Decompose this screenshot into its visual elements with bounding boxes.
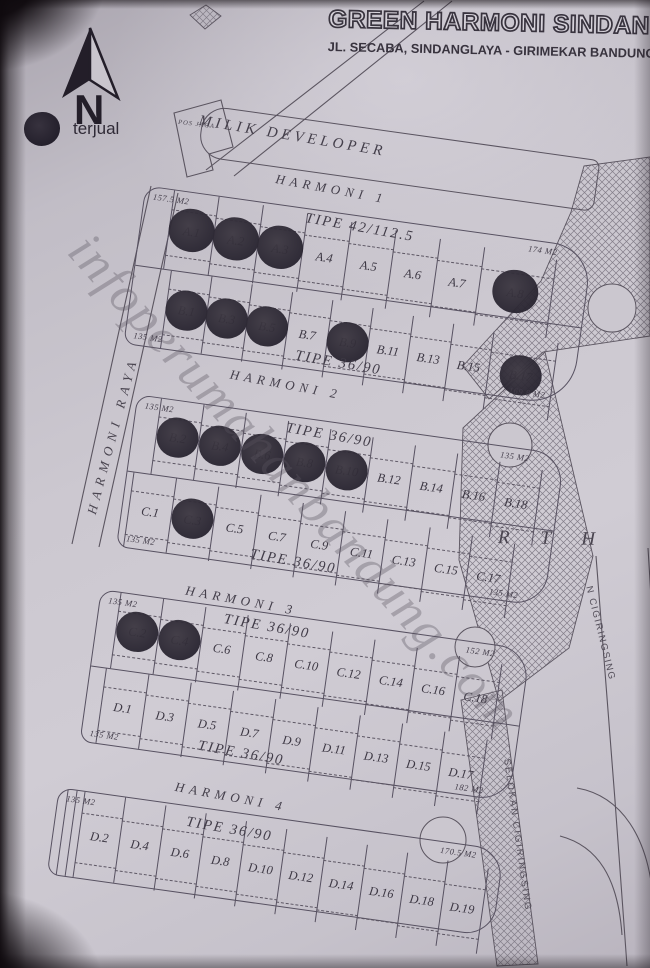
plot-label: D.1 xyxy=(112,700,132,717)
gate-diamond-hatch xyxy=(190,5,221,29)
sold-marker xyxy=(166,206,218,255)
plot-label: D.11 xyxy=(321,740,347,758)
plot-label: C.15 xyxy=(433,560,459,578)
sold-marker xyxy=(163,288,210,333)
sold-marker xyxy=(210,215,262,264)
plot-label: C.17 xyxy=(475,569,501,587)
sold-marker xyxy=(196,423,243,468)
plot-label: D.6 xyxy=(170,844,190,861)
block-harmoni-1: A.1A.2A.3A.4A.5A.6A.7A.8TIPE 42/112.5157… xyxy=(123,185,593,406)
sold-marker xyxy=(244,303,291,348)
sold-marker xyxy=(254,223,306,272)
sold-marker xyxy=(281,439,328,484)
sold-marker xyxy=(156,617,203,662)
plot-label: D.12 xyxy=(288,868,315,886)
plot-label: C.12 xyxy=(336,665,362,683)
plot-label: D.7 xyxy=(239,724,259,741)
plot-label: B.16 xyxy=(461,487,486,505)
plot-label: D.9 xyxy=(281,732,301,749)
sold-marker xyxy=(323,447,370,492)
plot-label: C.1 xyxy=(140,504,160,521)
plot-label: D.16 xyxy=(368,883,395,901)
site-plan-photo: MILIK DEVELOPER HARMONI 1A.1A.2A.3A.4A.5… xyxy=(0,0,650,968)
plan-header: GREEN HARMONI SINDANGLAYA JL. SECABA, SI… xyxy=(328,6,650,62)
block-harmoni-2: B.2B.4B.6B.8B.10B.12B.14B.16B.18TIPE 36/… xyxy=(116,394,565,607)
plot-B.17: B.17 xyxy=(483,333,558,420)
plot-label: C.13 xyxy=(391,552,417,570)
legend: terjual xyxy=(24,112,119,146)
plot-label: D.15 xyxy=(405,756,432,774)
plot-D.17: D.17 xyxy=(435,733,488,814)
page-title: GREEN HARMONI SINDANGLAYA xyxy=(328,6,650,42)
plot-label: A.6 xyxy=(403,266,422,283)
plot-label: D.8 xyxy=(210,852,230,869)
area-label: 152 M2 xyxy=(465,644,495,658)
plot-label: C.7 xyxy=(267,528,287,545)
plot-label: B.15 xyxy=(456,358,481,376)
sold-marker xyxy=(203,296,250,341)
sold-marker xyxy=(169,496,216,541)
plot-label: C.16 xyxy=(420,681,446,699)
plot-label: B.13 xyxy=(415,350,440,368)
plot-label: B.12 xyxy=(376,471,401,489)
plot-label: A.7 xyxy=(447,274,466,291)
sold-marker xyxy=(154,415,201,460)
plot-label: C.10 xyxy=(293,657,319,675)
plot-label: D.2 xyxy=(89,829,109,846)
area-label: 135 M2 xyxy=(500,449,530,463)
plot-label: D.3 xyxy=(155,708,175,725)
sold-marker xyxy=(114,609,161,654)
plot-label: D.10 xyxy=(247,860,274,878)
plot-label: B.11 xyxy=(376,342,400,360)
sold-legend-label: terjual xyxy=(73,119,119,139)
plot-label: C.8 xyxy=(254,649,274,666)
plot-label: D.17 xyxy=(447,765,474,783)
plot-label: C.14 xyxy=(378,673,404,691)
sold-legend-icon xyxy=(24,112,60,146)
plot-C.17: C.17 xyxy=(462,537,515,618)
area-label: 174 M2 xyxy=(528,243,558,257)
plot-label: B.7 xyxy=(298,327,317,344)
plot-label: C.11 xyxy=(349,544,374,562)
sold-marker xyxy=(239,431,286,476)
plot-label: C.9 xyxy=(309,536,329,553)
plot-label: C.5 xyxy=(225,520,245,537)
plot-label: D.4 xyxy=(129,836,149,853)
plot-label: B.14 xyxy=(419,479,444,497)
plot-label: A.5 xyxy=(359,258,378,275)
plot-label: D.13 xyxy=(363,748,390,766)
plot-label: D.18 xyxy=(408,891,435,909)
plot-label: D.14 xyxy=(328,875,355,893)
plot-label: A.4 xyxy=(315,249,334,266)
plot-label: C.18 xyxy=(462,689,488,707)
block-harmoni-3: C.2C.4C.6C.8C.10C.12C.14C.16C.18TIPE 36/… xyxy=(79,589,530,802)
plot-label: D.5 xyxy=(197,716,217,733)
plot-label: B.18 xyxy=(503,495,528,513)
rth-label: R T H xyxy=(498,527,608,551)
sold-marker xyxy=(490,267,542,316)
plot-label: C.6 xyxy=(212,641,232,658)
